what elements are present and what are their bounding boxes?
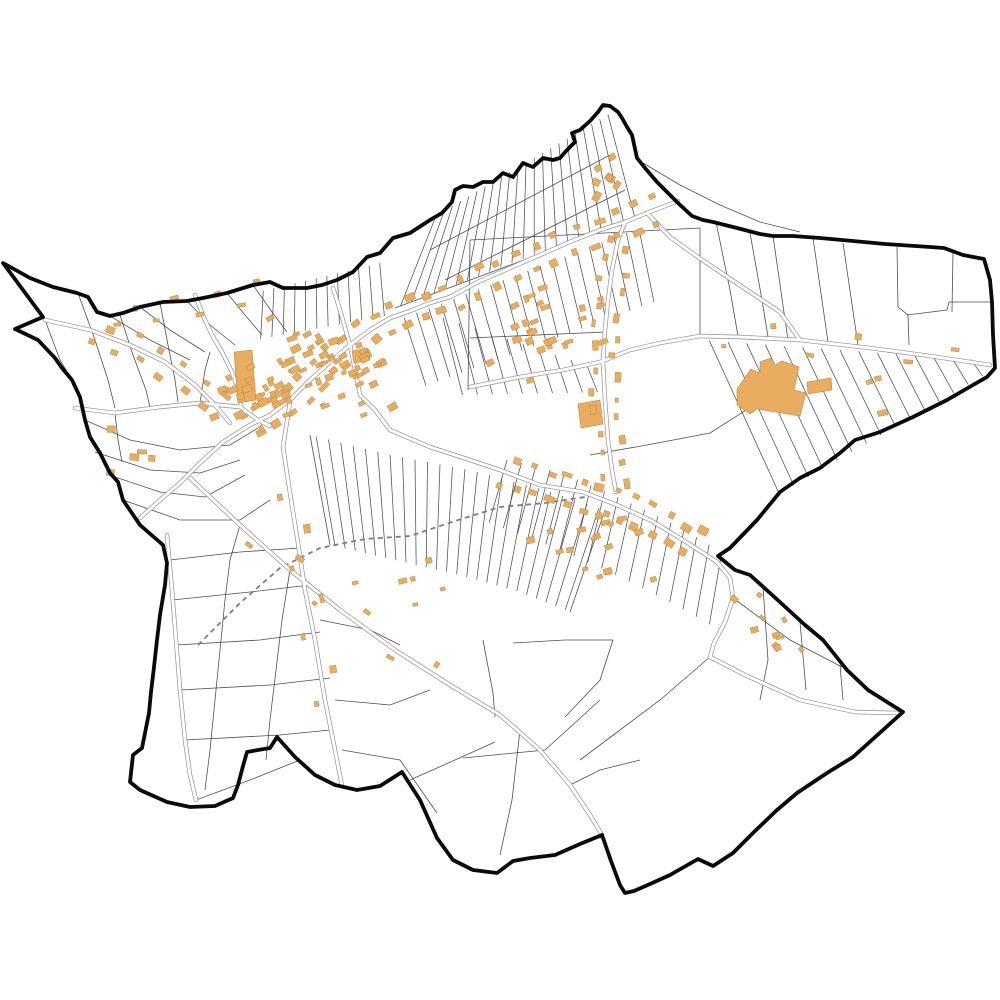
parcel-strip-line bbox=[542, 153, 545, 250]
parcel-line bbox=[176, 632, 320, 645]
parcel-strip-line bbox=[933, 357, 953, 393]
building bbox=[597, 303, 603, 310]
building bbox=[649, 500, 658, 508]
building bbox=[596, 574, 602, 579]
building bbox=[314, 701, 319, 707]
building bbox=[601, 474, 606, 481]
parcel-line bbox=[205, 525, 240, 790]
parcel-strip-line bbox=[436, 464, 440, 569]
building bbox=[492, 260, 500, 268]
building bbox=[114, 322, 122, 326]
parcel-strip-line bbox=[369, 266, 373, 318]
building bbox=[458, 304, 466, 311]
parcel-strip-line bbox=[316, 437, 335, 547]
parcel-strip-line bbox=[477, 475, 490, 580]
building bbox=[578, 316, 586, 321]
parcel-strip-line bbox=[353, 446, 365, 553]
building bbox=[594, 368, 598, 374]
building bbox=[530, 318, 539, 325]
parcel-strip-line bbox=[359, 268, 362, 320]
building bbox=[547, 528, 553, 534]
building bbox=[579, 508, 588, 515]
building bbox=[181, 386, 191, 396]
building bbox=[563, 501, 572, 509]
building bbox=[592, 191, 602, 203]
building bbox=[781, 617, 787, 624]
parcel-line bbox=[335, 690, 430, 705]
building bbox=[650, 576, 657, 582]
cadastral-map-stage bbox=[0, 0, 1000, 1000]
building bbox=[510, 323, 519, 331]
parcel-line bbox=[196, 760, 300, 800]
building bbox=[513, 457, 522, 466]
building bbox=[302, 350, 313, 358]
parcel-line bbox=[638, 160, 800, 232]
parcel-strip-line bbox=[536, 496, 563, 599]
parcel-line bbox=[580, 657, 710, 760]
building bbox=[680, 522, 692, 533]
building bbox=[663, 537, 675, 548]
parcel-strip-line bbox=[441, 304, 462, 373]
parcel-line bbox=[253, 285, 287, 332]
building bbox=[290, 344, 301, 354]
parcel-strip-line bbox=[602, 497, 618, 568]
building bbox=[136, 332, 144, 339]
building bbox=[615, 372, 622, 382]
parcel-strip-line bbox=[507, 339, 523, 394]
building bbox=[577, 527, 586, 533]
parcel-line bbox=[463, 700, 600, 758]
building bbox=[287, 335, 298, 343]
parcel-line bbox=[840, 665, 843, 700]
building bbox=[435, 306, 446, 315]
building bbox=[591, 243, 602, 251]
parcel-strip-line bbox=[457, 469, 465, 574]
building-landmark bbox=[737, 358, 806, 416]
road-casing-northeast-se-road bbox=[647, 213, 800, 340]
building bbox=[485, 358, 494, 366]
building bbox=[598, 431, 603, 437]
building bbox=[203, 380, 210, 387]
building bbox=[351, 319, 361, 328]
parcel-strip-line bbox=[454, 299, 474, 368]
building bbox=[303, 524, 310, 533]
building bbox=[277, 494, 283, 501]
road-surface-south-road bbox=[283, 402, 342, 786]
building bbox=[270, 418, 281, 429]
building bbox=[582, 567, 588, 571]
building bbox=[594, 218, 606, 226]
parcel-strip-line bbox=[523, 163, 526, 259]
building bbox=[371, 333, 382, 344]
parcel-strip-line bbox=[803, 347, 852, 451]
building bbox=[496, 482, 503, 489]
parcel-line bbox=[500, 730, 520, 855]
building bbox=[312, 601, 318, 607]
building bbox=[148, 455, 155, 461]
railway-line bbox=[198, 497, 585, 645]
parcel-strip-line bbox=[429, 308, 450, 377]
parcel-line bbox=[800, 622, 806, 690]
building bbox=[579, 304, 586, 311]
building bbox=[315, 377, 322, 385]
parcel-strip-line bbox=[555, 355, 568, 393]
road-surface-southeast-diagonal-road bbox=[190, 478, 602, 835]
parcel-strip-line bbox=[523, 344, 538, 393]
building bbox=[528, 489, 537, 496]
parcel-strip-line bbox=[821, 349, 866, 444]
parcel-strip-line bbox=[426, 462, 427, 567]
building bbox=[421, 291, 431, 301]
building bbox=[512, 335, 522, 343]
building bbox=[398, 578, 407, 585]
building bbox=[756, 592, 762, 598]
building bbox=[410, 576, 415, 581]
building bbox=[874, 376, 881, 382]
building bbox=[771, 324, 776, 329]
road-casings bbox=[45, 201, 990, 835]
parcel-strip-line bbox=[501, 172, 510, 267]
parcel-line bbox=[843, 243, 858, 345]
parcel-line bbox=[95, 452, 240, 473]
building bbox=[595, 275, 602, 280]
building bbox=[877, 409, 888, 416]
parcel-line bbox=[180, 678, 330, 690]
parcel-line bbox=[570, 510, 605, 612]
building bbox=[387, 402, 398, 412]
road-casing-south-road bbox=[283, 402, 342, 786]
building bbox=[289, 566, 294, 572]
building bbox=[531, 463, 538, 469]
parcel-line bbox=[513, 640, 613, 643]
cadastral-map bbox=[0, 0, 1000, 1000]
parcel-line bbox=[170, 548, 300, 560]
parcel-strip-line bbox=[588, 491, 605, 562]
building bbox=[750, 626, 759, 633]
building bbox=[369, 380, 379, 389]
building bbox=[566, 547, 573, 553]
building bbox=[611, 207, 620, 215]
building bbox=[289, 365, 300, 374]
parcel-line bbox=[266, 570, 290, 760]
building bbox=[619, 435, 626, 444]
building bbox=[866, 379, 873, 385]
building bbox=[245, 541, 253, 549]
parcel-strip-line bbox=[532, 470, 550, 539]
parcel-strip-line bbox=[378, 452, 386, 558]
building bbox=[341, 370, 346, 375]
building bbox=[438, 285, 447, 292]
parcel-strip-line bbox=[390, 455, 396, 560]
parcel-strip-line bbox=[615, 503, 631, 574]
road-surface-left-boundary-road bbox=[167, 535, 196, 800]
parcel-strip-line bbox=[443, 318, 463, 395]
building bbox=[262, 384, 269, 392]
building bbox=[609, 353, 615, 358]
parcel-line bbox=[123, 500, 270, 520]
building bbox=[456, 275, 463, 283]
parcel-line bbox=[227, 293, 262, 335]
building bbox=[590, 405, 598, 415]
building bbox=[526, 536, 535, 544]
building bbox=[628, 199, 638, 208]
parcel-line bbox=[907, 302, 992, 315]
building bbox=[388, 329, 396, 336]
parcel-strip-line bbox=[639, 228, 654, 302]
building bbox=[510, 302, 519, 310]
building bbox=[514, 274, 522, 281]
parcel-line bbox=[185, 730, 330, 740]
parcel-line bbox=[468, 240, 470, 390]
building bbox=[622, 246, 629, 254]
building bbox=[303, 331, 312, 339]
building bbox=[425, 557, 432, 564]
building bbox=[137, 355, 145, 362]
building bbox=[582, 479, 589, 486]
building bbox=[602, 254, 608, 261]
building bbox=[237, 303, 246, 308]
building bbox=[619, 459, 626, 466]
building bbox=[402, 320, 414, 330]
parcel-strip-line bbox=[415, 460, 416, 565]
building bbox=[130, 454, 139, 461]
building bbox=[433, 661, 440, 668]
building bbox=[648, 530, 658, 539]
parcel-strip-line bbox=[583, 129, 601, 229]
parcel-strip-line bbox=[380, 263, 385, 316]
building bbox=[209, 412, 219, 421]
building bbox=[591, 536, 598, 541]
building bbox=[422, 312, 430, 320]
building bbox=[549, 472, 557, 479]
building bbox=[798, 646, 804, 652]
building bbox=[533, 266, 540, 272]
building bbox=[320, 343, 329, 351]
parcel-line bbox=[565, 640, 613, 717]
parcel-strip-line bbox=[447, 467, 453, 572]
road-casing-southeast-diagonal-road bbox=[190, 478, 602, 835]
building bbox=[352, 581, 359, 585]
parcel-strip-line bbox=[348, 271, 351, 323]
building bbox=[593, 483, 604, 493]
building bbox=[307, 397, 315, 405]
parcel-strip-line bbox=[467, 472, 478, 577]
building bbox=[601, 450, 605, 456]
building bbox=[697, 525, 709, 536]
building bbox=[622, 273, 629, 279]
building bbox=[595, 512, 602, 520]
parcel-line bbox=[410, 742, 495, 780]
building bbox=[525, 337, 534, 346]
building bbox=[556, 549, 564, 555]
parcel-strip-line bbox=[600, 119, 624, 220]
railway-track bbox=[198, 497, 585, 645]
parcel-line bbox=[570, 760, 640, 785]
building bbox=[591, 320, 595, 327]
parcel-strip-line bbox=[567, 139, 579, 238]
building bbox=[613, 313, 620, 323]
parcel-strip-line bbox=[859, 351, 896, 426]
parcel-strip-line bbox=[915, 355, 939, 401]
building bbox=[180, 361, 187, 368]
parcel-strip-line bbox=[575, 134, 590, 234]
building bbox=[492, 282, 502, 292]
building bbox=[329, 665, 336, 673]
parcel-strip-line bbox=[490, 177, 502, 272]
parcel-strip-line bbox=[626, 233, 642, 307]
building bbox=[632, 227, 644, 237]
building bbox=[440, 587, 446, 592]
road-casing-band-road bbox=[390, 430, 897, 713]
parcel-strip-line bbox=[403, 457, 406, 562]
building bbox=[153, 319, 160, 323]
building bbox=[632, 493, 640, 500]
parcel-line bbox=[897, 247, 909, 345]
road-surface-band-road bbox=[390, 430, 897, 713]
building bbox=[110, 349, 118, 356]
building-landmark bbox=[807, 378, 832, 394]
building bbox=[571, 248, 578, 256]
building bbox=[604, 543, 613, 550]
building bbox=[623, 479, 630, 490]
building bbox=[292, 372, 302, 382]
building bbox=[722, 344, 726, 347]
building bbox=[413, 603, 418, 607]
parcel-strip-line bbox=[512, 167, 518, 263]
building bbox=[614, 414, 618, 420]
building bbox=[473, 262, 484, 272]
building bbox=[137, 450, 146, 454]
parcel-line bbox=[115, 413, 122, 462]
parcel-line bbox=[310, 435, 330, 545]
building bbox=[536, 300, 543, 306]
building bbox=[385, 301, 393, 309]
parcel-strip-line bbox=[840, 350, 881, 435]
building bbox=[598, 338, 609, 346]
parcel-line bbox=[140, 307, 205, 352]
building bbox=[759, 615, 765, 621]
parcel-strip-line bbox=[552, 261, 570, 333]
building bbox=[564, 339, 573, 345]
building bbox=[363, 609, 371, 616]
building bbox=[620, 288, 624, 296]
building bbox=[648, 193, 656, 200]
building bbox=[355, 342, 362, 348]
building bbox=[592, 341, 598, 351]
building bbox=[615, 336, 620, 343]
parcel-line bbox=[750, 233, 768, 337]
parcel-line bbox=[813, 238, 828, 342]
building bbox=[612, 180, 621, 190]
building bbox=[360, 412, 367, 418]
building bbox=[338, 393, 346, 400]
building bbox=[474, 292, 482, 301]
building bbox=[588, 389, 593, 397]
building bbox=[597, 296, 603, 302]
building bbox=[225, 375, 232, 382]
parcel-line bbox=[952, 251, 953, 312]
parcel-strip-line bbox=[629, 510, 645, 582]
building bbox=[325, 373, 334, 381]
parcel-strip-line bbox=[577, 252, 594, 324]
parcel-line bbox=[445, 190, 625, 280]
building bbox=[536, 346, 545, 354]
building bbox=[549, 258, 559, 268]
building bbox=[855, 333, 862, 340]
parcel-line bbox=[187, 301, 235, 345]
parcel-line bbox=[172, 585, 310, 600]
building bbox=[358, 400, 365, 406]
parcel-strip-line bbox=[417, 313, 438, 381]
building bbox=[371, 312, 381, 320]
parcel-strip-line bbox=[507, 485, 527, 588]
building bbox=[107, 426, 115, 433]
building bbox=[153, 372, 163, 381]
building bbox=[668, 511, 676, 519]
parcel-strip-line bbox=[294, 283, 295, 332]
building bbox=[603, 511, 610, 518]
building bbox=[904, 360, 913, 365]
parcel-line bbox=[120, 315, 150, 407]
building bbox=[526, 377, 535, 384]
building bbox=[951, 347, 959, 352]
building bbox=[607, 235, 614, 242]
building bbox=[386, 654, 395, 661]
building bbox=[156, 346, 164, 354]
building bbox=[615, 398, 618, 402]
building bbox=[319, 350, 329, 359]
building bbox=[573, 224, 580, 230]
